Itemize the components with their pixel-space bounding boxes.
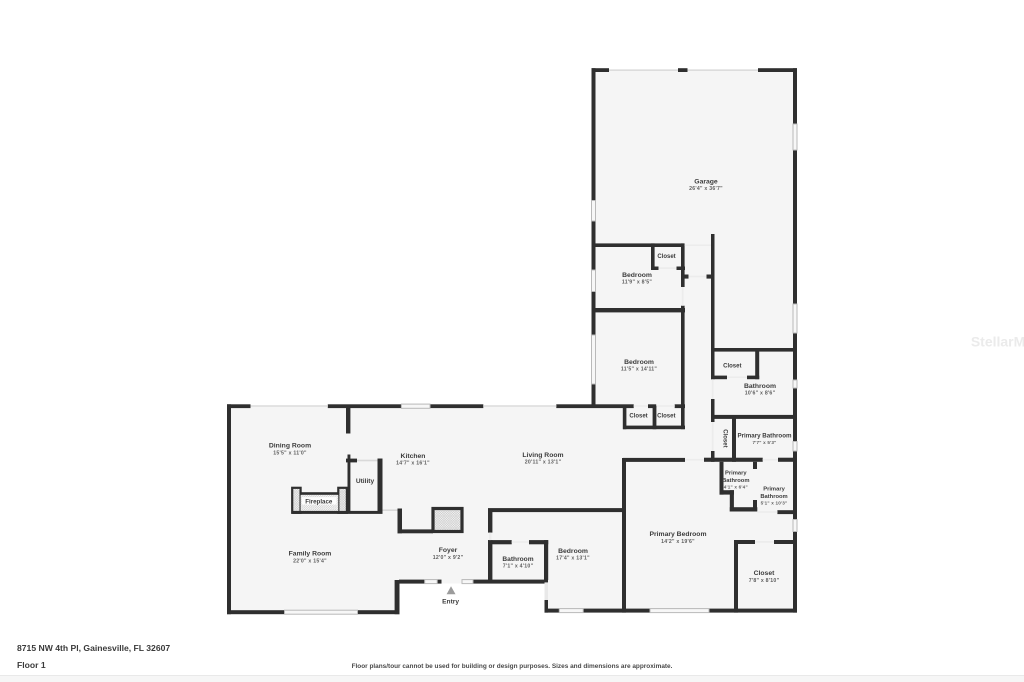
svg-text:15'5" x 11'0": 15'5" x 11'0"	[273, 451, 307, 457]
svg-text:22'0" x 15'4": 22'0" x 15'4"	[293, 559, 327, 565]
svg-text:Bedroom: Bedroom	[558, 548, 588, 555]
svg-text:11'9" x 8'5": 11'9" x 8'5"	[622, 280, 653, 286]
svg-text:14'7" x 16'1": 14'7" x 16'1"	[396, 461, 430, 467]
svg-text:Closet: Closet	[721, 429, 727, 447]
svg-text:Kitchen: Kitchen	[401, 453, 426, 460]
svg-text:7'8" x 8'10": 7'8" x 8'10"	[749, 578, 780, 584]
svg-text:Bathroom: Bathroom	[760, 494, 787, 500]
svg-text:StellarMLS: StellarMLS	[971, 334, 1024, 350]
svg-text:Bathroom: Bathroom	[722, 478, 749, 484]
svg-text:Closet: Closet	[657, 254, 675, 260]
svg-text:12'0" x 9'2": 12'0" x 9'2"	[433, 555, 464, 561]
svg-text:7'7" x 5'3": 7'7" x 5'3"	[752, 440, 776, 445]
svg-text:Primary Bathroom: Primary Bathroom	[738, 432, 792, 439]
svg-text:Primary: Primary	[725, 470, 747, 476]
svg-text:Family Room: Family Room	[289, 551, 332, 558]
svg-text:4'1" x 6'4": 4'1" x 6'4"	[724, 484, 748, 489]
svg-text:10'6" x 8'6": 10'6" x 8'6"	[745, 391, 776, 397]
svg-text:Utility: Utility	[356, 478, 375, 485]
svg-text:14'2" x 19'6": 14'2" x 19'6"	[661, 539, 695, 545]
svg-text:5'1" x 10'3": 5'1" x 10'3"	[761, 500, 788, 505]
svg-text:Dining Room: Dining Room	[269, 443, 311, 450]
svg-text:Garage: Garage	[694, 179, 718, 186]
svg-text:Primary Bedroom: Primary Bedroom	[649, 531, 706, 538]
svg-text:Fireplace: Fireplace	[305, 498, 333, 505]
svg-text:Closet: Closet	[657, 414, 675, 420]
svg-text:Foyer: Foyer	[439, 547, 458, 554]
svg-text:Bedroom: Bedroom	[622, 272, 652, 279]
svg-text:11'5" x 14'11": 11'5" x 14'11"	[621, 367, 658, 373]
svg-text:Living Room: Living Room	[522, 452, 563, 459]
svg-text:Bathroom: Bathroom	[744, 383, 776, 390]
svg-text:26'4" x 36'7": 26'4" x 36'7"	[689, 186, 723, 192]
svg-text:Primary: Primary	[763, 486, 785, 492]
svg-text:7'1" x 4'10": 7'1" x 4'10"	[503, 564, 534, 570]
svg-text:Entry: Entry	[442, 598, 459, 605]
svg-text:Closet: Closet	[754, 570, 776, 577]
svg-text:Closet: Closet	[629, 414, 647, 420]
svg-text:Bedroom: Bedroom	[624, 359, 654, 366]
svg-text:17'4" x 13'1": 17'4" x 13'1"	[556, 556, 590, 562]
svg-text:Closet: Closet	[723, 363, 741, 369]
svg-text:20'11" x 13'1": 20'11" x 13'1"	[525, 460, 562, 466]
svg-text:Bathroom: Bathroom	[502, 556, 533, 563]
